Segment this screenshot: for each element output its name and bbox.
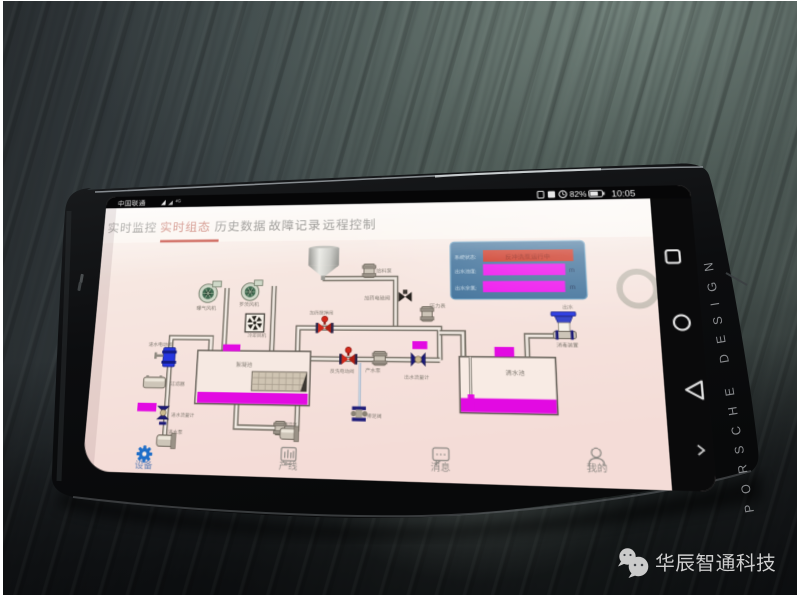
svg-text:82%: 82%: [569, 191, 586, 199]
svg-text:10:05: 10:05: [611, 188, 636, 199]
svg-text:4G: 4G: [175, 199, 181, 203]
